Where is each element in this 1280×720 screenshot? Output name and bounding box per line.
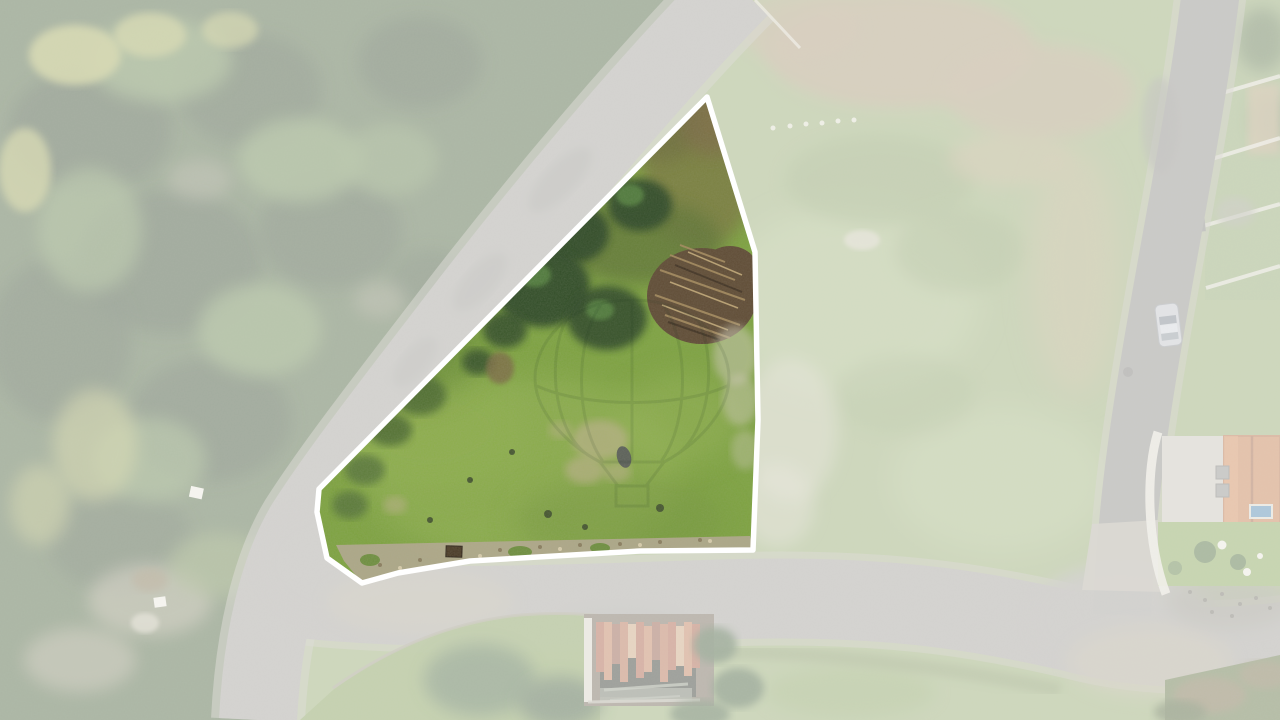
aerial-photo-frame	[0, 0, 1280, 720]
aerial-drone-photo	[0, 0, 1280, 720]
